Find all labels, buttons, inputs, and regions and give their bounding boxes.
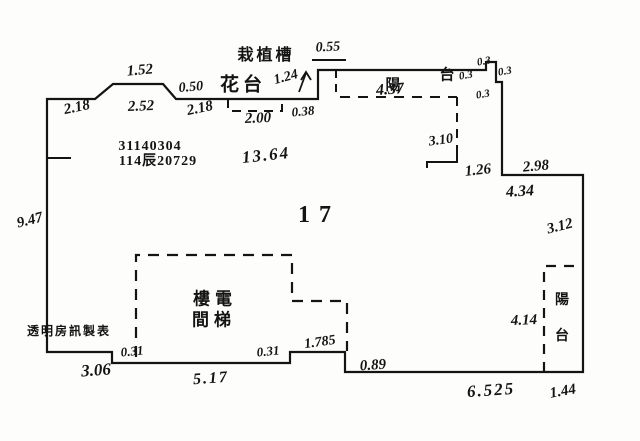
dim-0-3-b: 0.3 bbox=[476, 55, 491, 68]
dim-0-50: 0.50 bbox=[178, 80, 204, 96]
label-balcony-right-char-1: 陽 bbox=[555, 293, 569, 307]
dim-0-3-d: 0.3 bbox=[475, 88, 490, 101]
dim-3-06: 3.06 bbox=[81, 360, 112, 379]
watermark-text: 透明房訊製表 bbox=[27, 325, 111, 337]
label-planter-trough: 栽植槽 bbox=[237, 47, 294, 63]
dim-4-37: 4.37 bbox=[375, 81, 404, 99]
dim-0-89: 0.89 bbox=[359, 358, 386, 375]
dim-0-31-right: 0.31 bbox=[256, 343, 280, 358]
dim-5-17: 5.17 bbox=[192, 370, 229, 388]
registration-number-2: 114辰20729 bbox=[119, 155, 197, 169]
label-stairs-line-1: 樓電 bbox=[193, 292, 237, 309]
label-stairs-line-2: 間梯 bbox=[192, 313, 236, 330]
dim-4-14: 4.14 bbox=[511, 313, 538, 329]
dim-0-31-left: 0.31 bbox=[120, 343, 144, 358]
dim-1-26: 1.26 bbox=[464, 162, 492, 180]
flower-bed-dashed-box bbox=[228, 99, 282, 111]
dim-2-52: 2.52 bbox=[128, 99, 155, 115]
floor-plan-canvas: 1.522.522.180.502.18花台1.24栽植槽0.552.000.3… bbox=[0, 0, 640, 441]
dim-2-98: 2.98 bbox=[522, 158, 549, 175]
dim-6-525: 6.525 bbox=[466, 380, 515, 400]
dim-0-3-a: 0.3 bbox=[458, 69, 473, 82]
dim-2-00: 2.00 bbox=[245, 111, 272, 127]
dim-1-52: 1.52 bbox=[126, 62, 153, 79]
label-balcony-right-char-2: 台 bbox=[555, 329, 569, 343]
dim-0-3-c: 0.3 bbox=[497, 65, 512, 78]
dim-0-38: 0.38 bbox=[291, 104, 315, 119]
mid-corner-tick bbox=[427, 150, 457, 168]
label-balcony-top-char-2: 台 bbox=[439, 68, 454, 83]
balcony-right-dashed-outline bbox=[544, 266, 583, 372]
dim-4-34: 4.34 bbox=[506, 183, 535, 200]
registration-number-1: 31140304 bbox=[118, 140, 181, 154]
dim-1-24-arrow bbox=[299, 72, 311, 92]
unit-number: 17 bbox=[298, 203, 340, 227]
dim-0-55: 0.55 bbox=[315, 40, 340, 55]
label-flower-bed: 花台 bbox=[220, 76, 266, 95]
dim-13-64: 13.64 bbox=[241, 144, 291, 166]
